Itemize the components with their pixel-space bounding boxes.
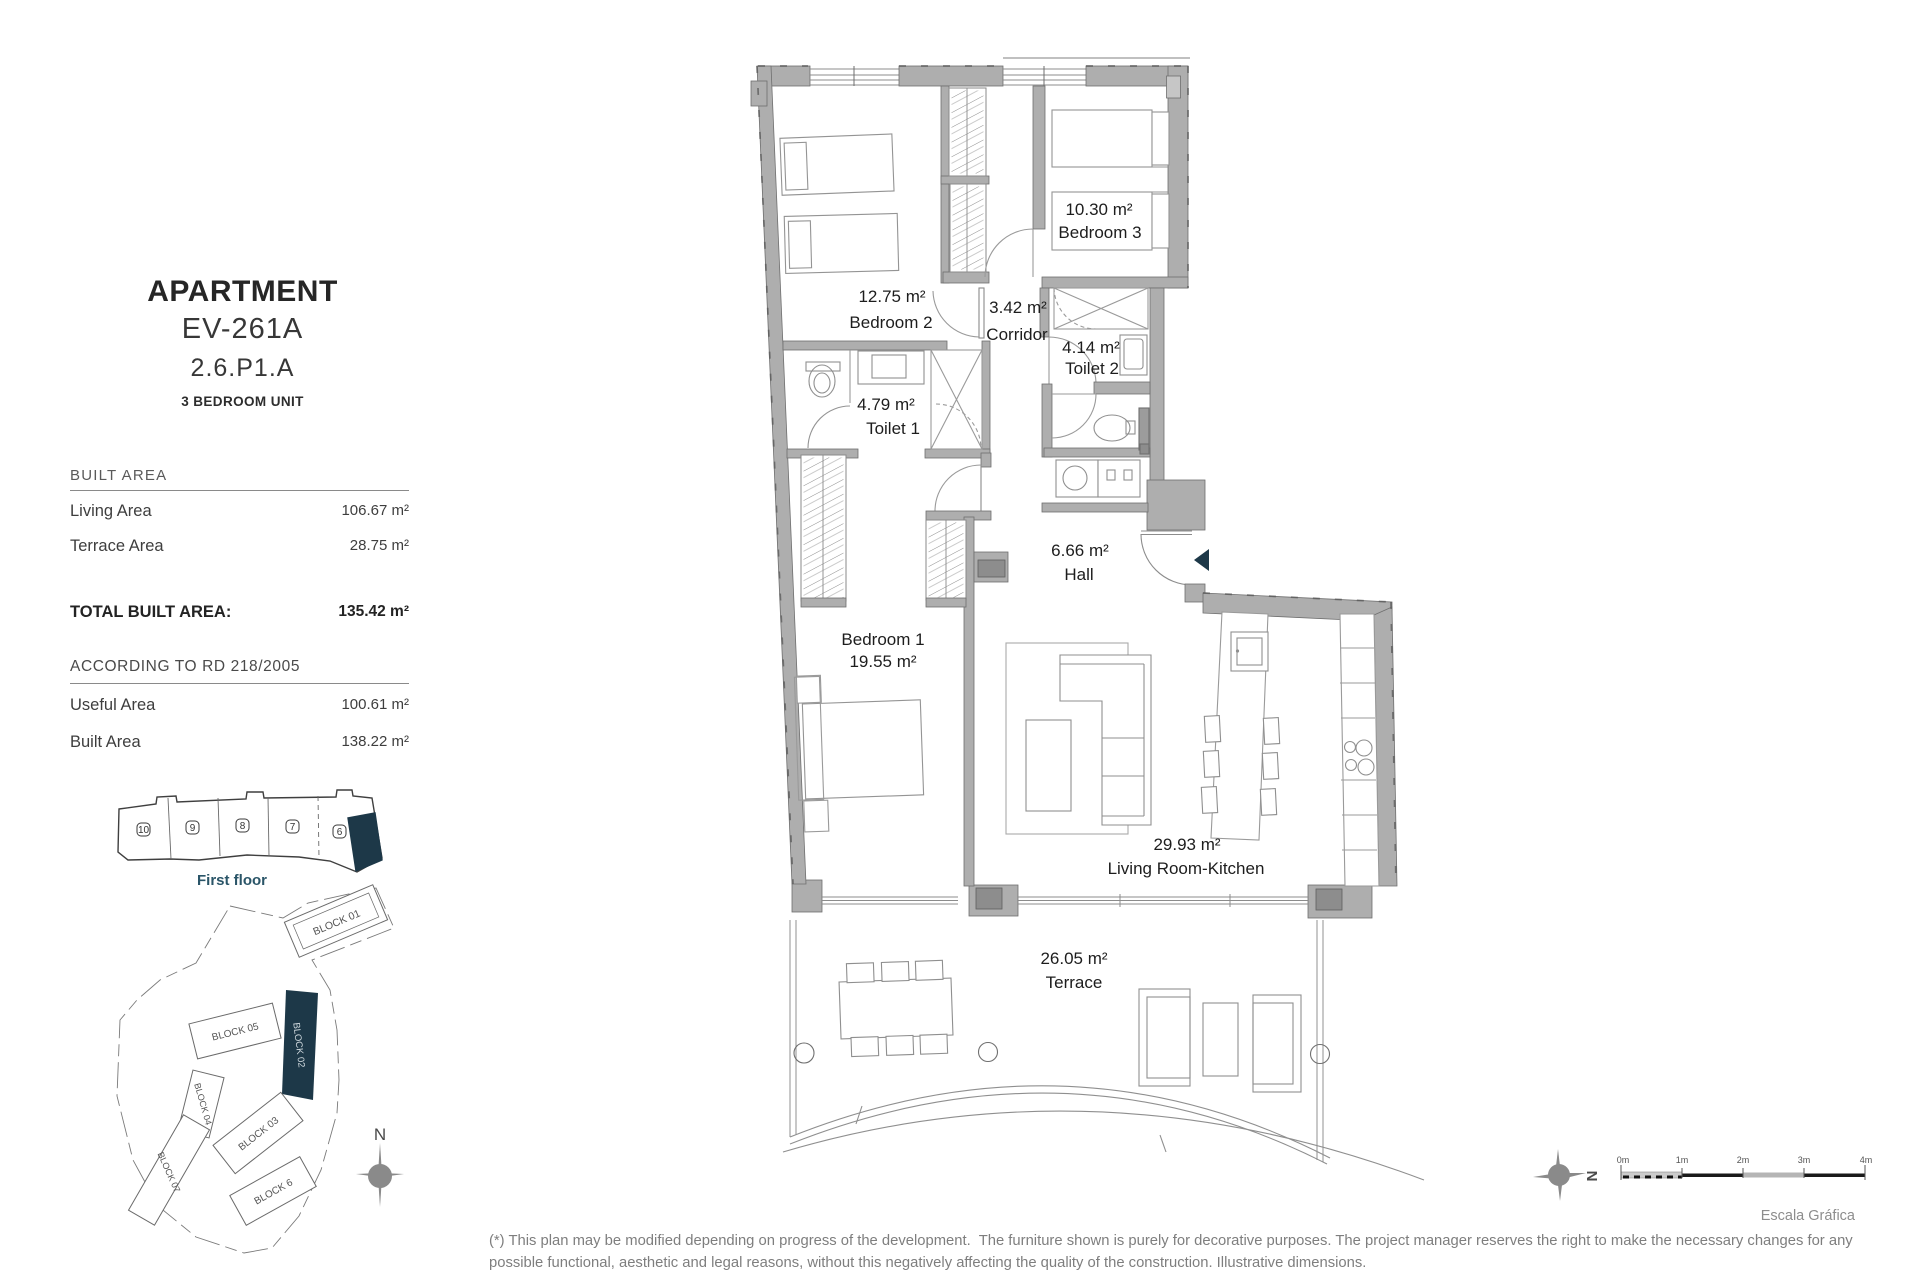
svg-text:N: N bbox=[1583, 1171, 1600, 1182]
svg-text:2m: 2m bbox=[1737, 1155, 1750, 1165]
svg-text:1m: 1m bbox=[1676, 1155, 1689, 1165]
svg-text:8: 8 bbox=[240, 821, 246, 832]
svg-text:4m: 4m bbox=[1860, 1155, 1873, 1165]
svg-text:7: 7 bbox=[290, 822, 296, 833]
svg-text:10: 10 bbox=[138, 825, 150, 836]
svg-text:N: N bbox=[374, 1125, 386, 1144]
svg-text:9: 9 bbox=[190, 823, 196, 834]
svg-text:6: 6 bbox=[337, 827, 343, 838]
svg-text:0m: 0m bbox=[1617, 1155, 1630, 1165]
svg-text:3m: 3m bbox=[1798, 1155, 1811, 1165]
